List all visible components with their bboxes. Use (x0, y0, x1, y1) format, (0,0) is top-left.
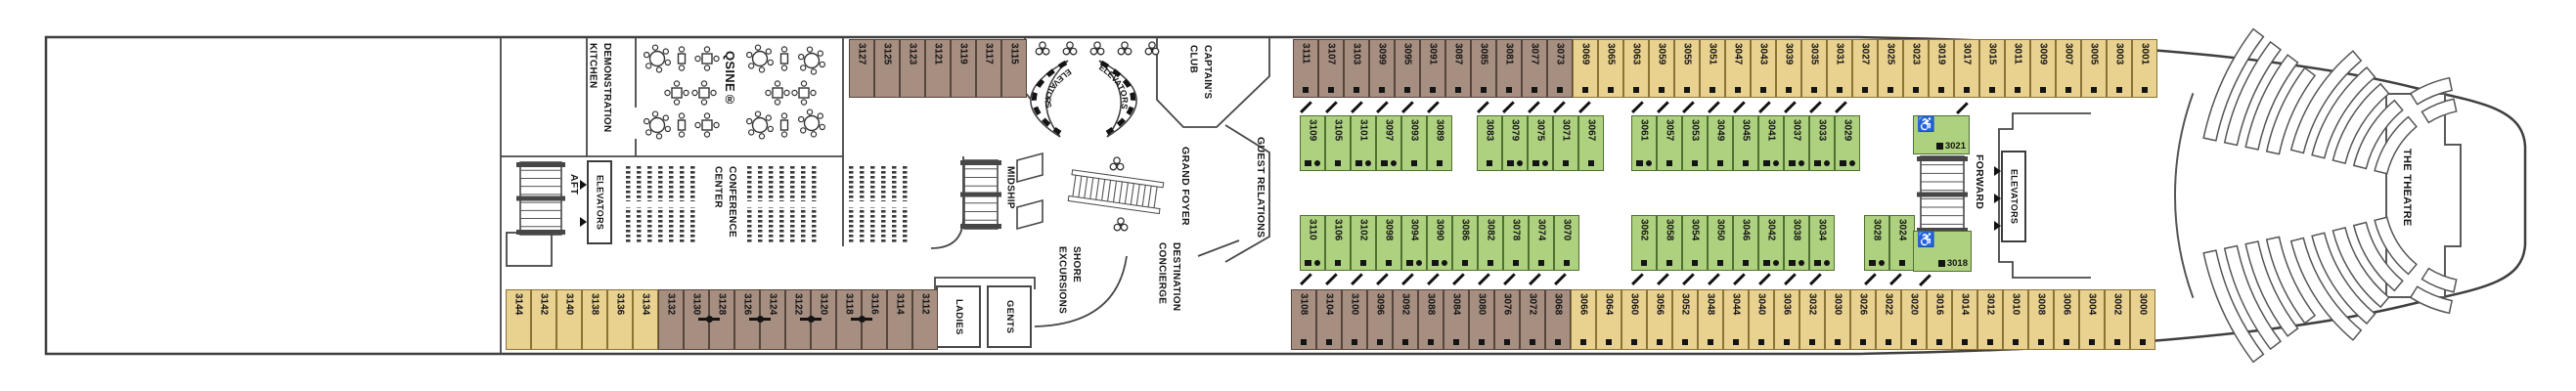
square-marker-icon (1352, 339, 1358, 346)
cabin-number: 3003 (2114, 43, 2125, 65)
dot-marker-icon (1365, 160, 1371, 166)
dot-marker-icon (1799, 160, 1804, 166)
square-marker-icon (1763, 260, 1770, 267)
cabin-number: 3127 (857, 43, 867, 65)
cabin-3012: 3012 (1977, 289, 2003, 350)
cabin-number: 3035 (1809, 43, 1820, 65)
label-elevators-aft: ELEVATORS (593, 175, 605, 230)
label-aft: AFT (566, 174, 581, 195)
square-marker-icon (1406, 260, 1413, 267)
cabin-3027: 3027 (1852, 39, 1878, 98)
cabin-number: 3030 (1833, 293, 1843, 315)
square-marker-icon (2015, 87, 2021, 94)
cabin-number: 3069 (1580, 43, 1591, 65)
square-marker-icon (1733, 339, 1740, 346)
cabin-3039: 3039 (1776, 39, 1801, 98)
cabin-3088: 3088 (1418, 289, 1443, 350)
square-marker-icon (1305, 160, 1311, 167)
square-marker-icon (1811, 87, 1818, 94)
cabin-number: 3092 (1400, 293, 1411, 315)
cabin-number: 3116 (869, 293, 880, 315)
cabin-3015: 3015 (1979, 39, 2005, 98)
cabin-3085: 3085 (1471, 39, 1496, 98)
cabin-3099: 3099 (1369, 39, 1395, 98)
midship-staircase (960, 160, 1001, 229)
square-marker-icon (2142, 87, 2149, 94)
square-marker-icon (1481, 87, 1488, 94)
cabin-3095: 3095 (1395, 39, 1420, 98)
cabin-number: 3019 (1936, 43, 1947, 65)
cabin-3036: 3036 (1774, 289, 1799, 350)
connecting-rooms-icon (749, 318, 771, 321)
cabin-3045: 3045 (1733, 115, 1758, 171)
cabin-3030: 3030 (1825, 289, 1850, 350)
cabin-3108: 3108 (1291, 289, 1316, 350)
square-marker-icon (1710, 87, 1716, 94)
cabin-3044: 3044 (1723, 289, 1749, 350)
label-conference-center: CONFERENCE CENTER (710, 166, 738, 238)
cabin-3016: 3016 (1927, 289, 1952, 350)
cabin-number: 3086 (1460, 219, 1471, 240)
cabin-3127: 3127 (849, 39, 874, 98)
cabin-3103: 3103 (1344, 39, 1369, 98)
cabin-number: 3031 (1835, 43, 1845, 65)
cabin-number: 3120 (819, 293, 829, 315)
cabin-number: 3089 (1435, 119, 1445, 141)
label-guest-relations: GUEST RELATIONS (1253, 137, 1267, 238)
forward-elevators: ELEVATORS (2001, 151, 2026, 242)
label-qsine-restaurant: QSINE® (720, 51, 738, 107)
square-marker-icon (1735, 87, 1742, 94)
wheelchair-icon: ♿ (1917, 117, 1935, 132)
deck-plan-drawing: ELEVATORS ELEVATORS (0, 0, 2576, 391)
cabin-number: 3079 (1510, 119, 1521, 141)
cabin-number: 3103 (1352, 43, 1362, 65)
cabin-number: 3001 (2140, 43, 2151, 65)
square-marker-icon (1814, 260, 1821, 267)
cabin-number: 3119 (958, 43, 969, 65)
label-ladies: LADIES (952, 299, 965, 335)
square-marker-icon (1335, 160, 1342, 167)
dot-marker-icon (1442, 260, 1447, 266)
square-marker-icon (1303, 87, 1310, 94)
cabin-3068: 3068 (1545, 289, 1571, 350)
square-marker-icon (1886, 339, 1892, 346)
cabin-3071: 3071 (1553, 115, 1578, 171)
square-marker-icon (1869, 260, 1876, 267)
cabin-3022: 3022 (1876, 289, 1901, 350)
cabin-3115: 3115 (1001, 39, 1027, 98)
cabin-3053: 3053 (1682, 115, 1708, 171)
square-marker-icon (1659, 87, 1666, 94)
cabin-3028: 3028 (1864, 215, 1889, 271)
cabin-3037: 3037 (1784, 115, 1809, 171)
square-marker-icon (1786, 87, 1793, 94)
square-marker-icon (1404, 87, 1411, 94)
square-marker-icon (2013, 339, 2020, 346)
cabin-number: 3055 (1682, 43, 1693, 65)
label-destination-concierge: DESTINATION CONCIERGE (1154, 242, 1182, 311)
square-marker-icon (1487, 160, 1493, 167)
aft-elevators: ELEVATORS (587, 160, 612, 244)
dot-marker-icon (1542, 160, 1548, 166)
square-marker-icon (1862, 87, 1869, 94)
cabin-3003: 3003 (2107, 39, 2132, 98)
dot-marker-icon (1799, 260, 1804, 266)
cabin-3066: 3066 (1571, 289, 1596, 350)
label-elevators-forward: ELEVATORS (2007, 169, 2020, 224)
square-marker-icon (1462, 260, 1469, 267)
cabin-number: 3072 (1528, 293, 1538, 315)
cabin-number: 3096 (1375, 293, 1386, 315)
cabin-number: 3036 (1782, 293, 1793, 315)
square-marker-icon (1453, 339, 1460, 346)
cabin-number: 3084 (1451, 293, 1462, 315)
cabin-number: 3075 (1535, 119, 1546, 141)
cabin-number: 3111 (1301, 43, 1311, 64)
cabin-number: 3106 (1333, 219, 1344, 240)
label-captains-club: CAPTAIN'S CLUB (1185, 45, 1214, 99)
cabin-3097: 3097 (1376, 115, 1401, 171)
cabin-number: 3029 (1843, 119, 1853, 141)
cabin-number: 3101 (1358, 119, 1369, 141)
cabin-3070: 3070 (1554, 215, 1579, 271)
square-marker-icon (1582, 87, 1589, 94)
square-marker-icon (1743, 160, 1750, 167)
dot-marker-icon (1773, 160, 1779, 166)
cabin-3000: 3000 (2130, 289, 2155, 350)
square-marker-icon (1989, 87, 1996, 94)
cabin-3019: 3019 (1929, 39, 1954, 98)
cabin-3134: 3134 (633, 289, 658, 350)
cabin-3111: 3111 (1293, 39, 1318, 98)
square-marker-icon (1530, 339, 1536, 346)
accessible-cabin-3021: ♿3021 (1913, 115, 1970, 154)
square-marker-icon (1760, 87, 1767, 94)
cabin-3101: 3101 (1351, 115, 1376, 171)
cabin-3002: 3002 (2105, 289, 2130, 350)
cabin-number: 3090 (1435, 219, 1445, 240)
cabin-3009: 3009 (2030, 39, 2056, 98)
square-marker-icon (1633, 87, 1640, 94)
square-marker-icon (1666, 260, 1673, 267)
dot-marker-icon (1391, 160, 1397, 166)
square-marker-icon (2091, 87, 2098, 94)
cabin-number: 3107 (1326, 43, 1337, 65)
cabin-3078: 3078 (1503, 215, 1529, 271)
cabin-number: 3077 (1530, 43, 1540, 65)
cabin-3017: 3017 (1954, 39, 1979, 98)
square-marker-icon (1513, 260, 1520, 267)
elevator-door-icon (580, 180, 587, 190)
cabin-number: 3109 (1308, 119, 1318, 141)
square-marker-icon (1962, 339, 1969, 346)
cabin-number: 3033 (1817, 119, 1828, 141)
square-marker-icon (1888, 87, 1894, 94)
square-marker-icon (2114, 339, 2121, 346)
cabin-number: 3050 (1715, 219, 1726, 240)
dot-marker-icon (1517, 160, 1523, 166)
cabin-3114: 3114 (887, 289, 912, 350)
cabin-3081: 3081 (1496, 39, 1522, 98)
square-marker-icon (1809, 339, 1816, 346)
cabin-3001: 3001 (2132, 39, 2157, 98)
cabin-number: 3065 (1606, 43, 1617, 65)
cabin-number: 3132 (666, 293, 677, 315)
label-midship: MIDSHIP (1002, 166, 1017, 209)
cabin-number: 3038 (1792, 219, 1802, 240)
square-marker-icon (1789, 160, 1796, 167)
dot-marker-icon (1646, 160, 1652, 166)
square-marker-icon (1301, 339, 1308, 346)
cabin-number: 3088 (1426, 293, 1437, 315)
cabin-3048: 3048 (1698, 289, 1723, 350)
cabin-3055: 3055 (1674, 39, 1700, 98)
cabin-3023: 3023 (1903, 39, 1929, 98)
cabin-3144: 3144 (506, 289, 531, 350)
square-marker-icon (1666, 160, 1673, 167)
square-marker-icon (1360, 260, 1367, 267)
cabin-3073: 3073 (1547, 39, 1573, 98)
cabin-number: 3014 (1960, 293, 1971, 315)
cabin-number: 3004 (2087, 293, 2098, 315)
cabin-3140: 3140 (556, 289, 582, 350)
square-marker-icon (1563, 160, 1570, 167)
cabin-number: 3041 (1766, 119, 1777, 141)
cabin-number: 3080 (1477, 293, 1488, 315)
cabin-number: 3070 (1562, 219, 1573, 240)
cabin-3043: 3043 (1751, 39, 1776, 98)
cabin-3106: 3106 (1325, 215, 1351, 271)
square-marker-icon (2140, 339, 2147, 346)
square-marker-icon (1936, 339, 1943, 346)
square-marker-icon (2038, 339, 2045, 346)
square-marker-icon (1936, 143, 1943, 150)
cabin-number: 3123 (908, 43, 918, 65)
cabin-3072: 3072 (1520, 289, 1545, 350)
cabin-3100: 3100 (1342, 289, 1367, 350)
cabin-number: 3081 (1504, 43, 1515, 65)
cabin-3060: 3060 (1621, 289, 1647, 350)
elevator-door-icon (1994, 166, 2001, 176)
cabin-3076: 3076 (1494, 289, 1520, 350)
cabin-number: 3044 (1731, 293, 1742, 315)
dot-marker-icon (1849, 160, 1855, 166)
cabin-3123: 3123 (900, 39, 925, 98)
dot-marker-icon (1824, 160, 1830, 166)
cabin-number: 3115 (1009, 43, 1020, 65)
square-marker-icon (1606, 339, 1613, 346)
square-marker-icon (1305, 260, 1311, 267)
square-marker-icon (1555, 339, 1562, 346)
cabin-3046: 3046 (1733, 215, 1758, 271)
square-marker-icon (1432, 260, 1439, 267)
cabin-number: 3006 (2062, 293, 2072, 315)
cabin-3082: 3082 (1478, 215, 1503, 271)
cabin-number: 3104 (1324, 293, 1335, 315)
cabin-number: 3007 (2064, 43, 2074, 65)
square-marker-icon (1708, 339, 1714, 346)
square-marker-icon (1840, 160, 1846, 167)
cabin-3098: 3098 (1376, 215, 1401, 271)
square-marker-icon (1987, 339, 1994, 346)
cabin-3065: 3065 (1598, 39, 1623, 98)
square-marker-icon (1354, 87, 1360, 94)
square-marker-icon (1411, 160, 1418, 167)
square-marker-icon (1684, 87, 1691, 94)
connecting-rooms-icon (698, 318, 720, 321)
cabin-number: 3064 (1604, 293, 1615, 315)
cabin-number: 3067 (1586, 119, 1597, 141)
square-marker-icon (1636, 160, 1643, 167)
dot-marker-icon (1416, 260, 1422, 266)
cabin-3006: 3006 (2054, 289, 2079, 350)
square-marker-icon (1538, 260, 1545, 267)
cabin-3104: 3104 (1316, 289, 1342, 350)
cabin-number: 3056 (1655, 293, 1666, 315)
square-marker-icon (1355, 160, 1362, 167)
cabin-number: 3002 (2112, 293, 2123, 315)
cabin-3035: 3035 (1801, 39, 1827, 98)
cabin-number: 3066 (1578, 293, 1589, 315)
cabin-number: 3054 (1690, 219, 1701, 240)
cabin-number: 3105 (1333, 119, 1344, 141)
square-marker-icon (1860, 339, 1867, 346)
cabin-number: 3046 (1741, 219, 1752, 240)
cabin-number: 3125 (882, 43, 893, 65)
cabin-number: 3028 (1872, 219, 1883, 240)
cabin-number: 3042 (1766, 219, 1777, 240)
square-marker-icon (2064, 339, 2070, 346)
cabin-number: 3144 (513, 293, 524, 315)
cabin-number: 3011 (2013, 43, 2023, 65)
label-forward: FORWARD (1972, 154, 1986, 209)
square-marker-icon (1763, 160, 1770, 167)
cabin-number: 3063 (1631, 43, 1642, 65)
square-marker-icon (1899, 260, 1906, 267)
cabin-number: 3087 (1453, 43, 1464, 65)
cabin-number: 3009 (2038, 43, 2049, 65)
cabin-3142: 3142 (531, 289, 556, 350)
cabin-number: 3128 (717, 293, 728, 315)
cabin-3069: 3069 (1573, 39, 1598, 98)
square-marker-icon (1938, 260, 1945, 267)
cabin-3067: 3067 (1578, 115, 1604, 171)
cabin-number: 3022 (1884, 293, 1894, 315)
square-marker-icon (1938, 87, 1945, 94)
cabin-number: 3093 (1409, 119, 1420, 141)
cabin-3132: 3132 (658, 289, 684, 350)
square-marker-icon (1335, 260, 1342, 267)
cabin-number: 3068 (1553, 293, 1564, 315)
cabin-3007: 3007 (2056, 39, 2081, 98)
cabin-number: 3051 (1708, 43, 1718, 65)
cabin-number: 3061 (1639, 119, 1650, 141)
cabin-number: 3110 (1308, 219, 1318, 240)
square-marker-icon (1692, 260, 1699, 267)
cabin-3119: 3119 (951, 39, 976, 98)
cabin-number: 3026 (1858, 293, 1869, 315)
square-marker-icon (1381, 160, 1388, 167)
cabin-3058: 3058 (1657, 215, 1682, 271)
cabin-3074: 3074 (1529, 215, 1554, 271)
cabin-number: 3020 (1909, 293, 1920, 315)
cabin-number: 3043 (1758, 43, 1769, 65)
cabin-3062: 3062 (1631, 215, 1657, 271)
cabin-number: 3078 (1511, 219, 1522, 240)
cabin-number: 3140 (564, 293, 575, 315)
square-marker-icon (1506, 87, 1513, 94)
cabin-number: 3010 (2011, 293, 2021, 315)
cabin-number: 3095 (1402, 43, 1413, 65)
cabin-3112: 3112 (912, 289, 938, 350)
cabin-3063: 3063 (1623, 39, 1649, 98)
cabin-number: 3099 (1377, 43, 1388, 65)
square-marker-icon (2089, 339, 2096, 346)
square-marker-icon (1784, 339, 1791, 346)
cabin-3102: 3102 (1351, 215, 1376, 271)
cabin-3031: 3031 (1827, 39, 1852, 98)
square-marker-icon (1430, 87, 1437, 94)
square-marker-icon (1479, 339, 1486, 346)
cabin-number: 3094 (1409, 219, 1420, 240)
cabin-3014: 3014 (1952, 289, 1977, 350)
square-marker-icon (1964, 87, 1971, 94)
cabin-3110: 3110 (1300, 215, 1325, 271)
cabin-number: 3136 (615, 293, 626, 315)
label-grand-foyer: GRAND FOYER (1177, 147, 1192, 226)
cabin-number: 3057 (1665, 119, 1675, 141)
dot-marker-icon (1314, 160, 1320, 166)
connecting-rooms-icon (851, 318, 872, 321)
cabin-3033: 3033 (1809, 115, 1835, 171)
cabin-3024: 3024 (1889, 215, 1915, 271)
cabin-number: 3121 (933, 43, 944, 65)
cabin-3041: 3041 (1758, 115, 1784, 171)
cabin-3117: 3117 (976, 39, 1001, 98)
cabin-number: 3012 (1985, 293, 1996, 315)
label-gents: GENTS (1002, 300, 1016, 333)
ladies-room: LADIES (936, 285, 981, 348)
square-marker-icon (1377, 339, 1384, 346)
cabin-3004: 3004 (2079, 289, 2105, 350)
cabin-number: 3059 (1657, 43, 1667, 65)
square-marker-icon (1557, 87, 1564, 94)
square-marker-icon (1580, 339, 1587, 346)
cabin-3005: 3005 (2081, 39, 2107, 98)
cabin-number: 3024 (1897, 219, 1908, 240)
cabin-number: 3118 (844, 293, 855, 315)
cabin-number: 3027 (1860, 43, 1871, 65)
cabin-3025: 3025 (1878, 39, 1903, 98)
cabin-number: 3142 (539, 293, 550, 315)
square-marker-icon (1913, 87, 1920, 94)
square-marker-icon (1532, 160, 1539, 167)
square-marker-icon (1326, 339, 1333, 346)
cabin-3083: 3083 (1477, 115, 1502, 171)
cabin-number: 3102 (1358, 219, 1369, 240)
cabin-number: 3108 (1299, 293, 1310, 315)
cabin-3077: 3077 (1522, 39, 1547, 98)
cabin-number: 3126 (742, 293, 753, 315)
cabin-number: 3017 (1962, 43, 1973, 65)
cabin-3125: 3125 (874, 39, 900, 98)
cabin-number: 3124 (768, 293, 778, 315)
square-marker-icon (1911, 339, 1918, 346)
square-marker-icon (1657, 339, 1664, 346)
cabin-number: 3015 (1987, 43, 1998, 65)
cabin-number: 3047 (1733, 43, 1744, 65)
